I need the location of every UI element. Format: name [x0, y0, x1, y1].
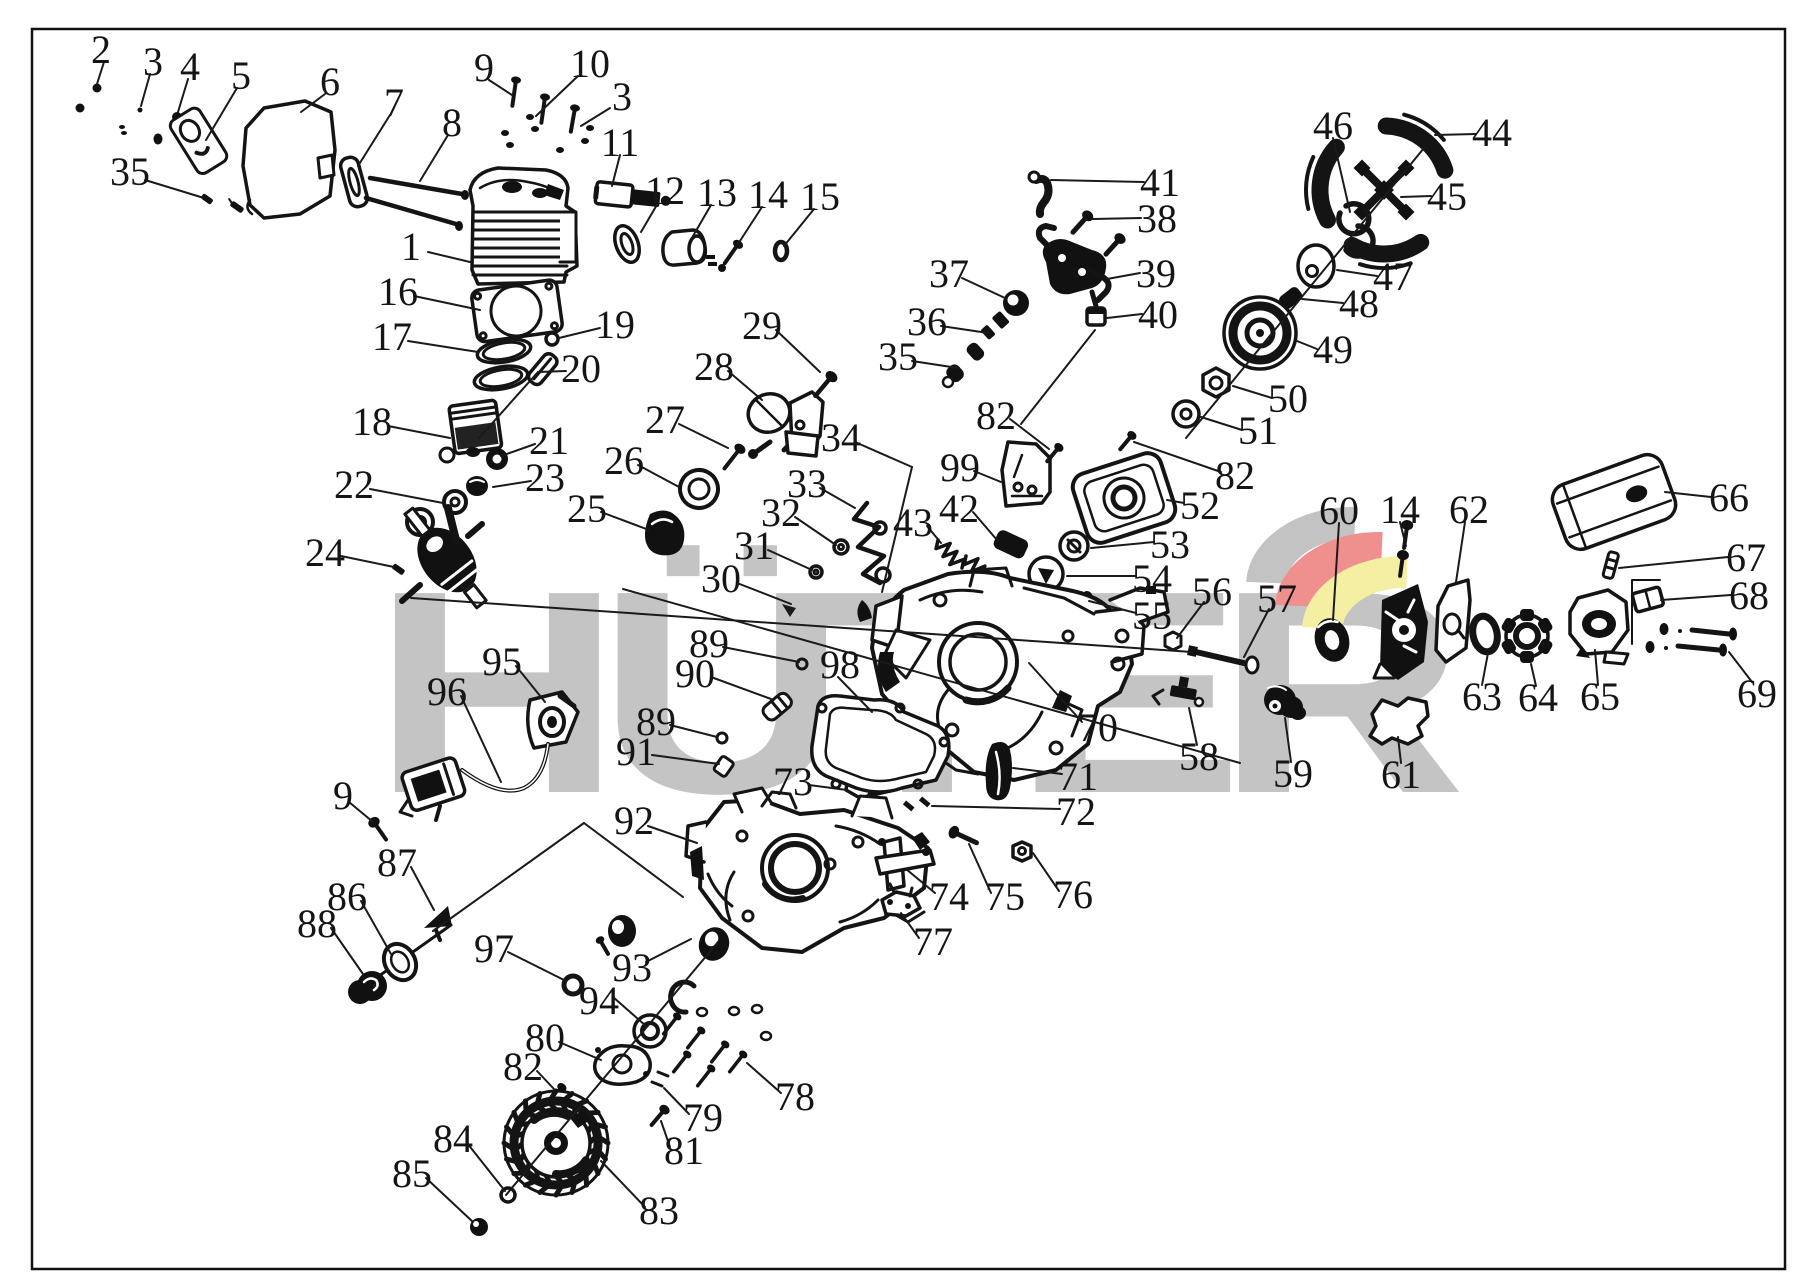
- svg-text:14: 14: [1380, 487, 1420, 532]
- svg-text:60: 60: [1319, 488, 1359, 533]
- svg-text:83: 83: [639, 1188, 679, 1233]
- svg-text:38: 38: [1137, 196, 1177, 241]
- svg-text:10: 10: [570, 41, 610, 86]
- svg-text:47: 47: [1373, 254, 1413, 299]
- svg-text:61: 61: [1381, 752, 1421, 797]
- svg-text:8: 8: [442, 100, 462, 145]
- svg-text:3: 3: [143, 39, 163, 84]
- svg-text:44: 44: [1472, 110, 1512, 155]
- svg-text:42: 42: [939, 486, 979, 531]
- svg-text:55: 55: [1132, 593, 1172, 638]
- svg-text:85: 85: [392, 1151, 432, 1196]
- svg-text:73: 73: [773, 759, 813, 804]
- svg-text:16: 16: [378, 269, 418, 314]
- svg-text:5: 5: [231, 53, 251, 98]
- svg-text:9: 9: [333, 773, 353, 818]
- svg-text:98: 98: [820, 642, 860, 687]
- svg-text:13: 13: [697, 170, 737, 215]
- svg-text:77: 77: [913, 919, 953, 964]
- svg-text:58: 58: [1179, 734, 1219, 779]
- svg-text:26: 26: [604, 438, 644, 483]
- svg-text:37: 37: [929, 251, 969, 296]
- svg-text:72: 72: [1056, 789, 1096, 834]
- svg-text:45: 45: [1427, 174, 1467, 219]
- svg-text:57: 57: [1257, 576, 1297, 621]
- svg-text:14: 14: [748, 172, 788, 217]
- svg-text:68: 68: [1729, 573, 1769, 618]
- svg-text:40: 40: [1138, 292, 1178, 337]
- svg-text:70: 70: [1078, 705, 1118, 750]
- svg-text:62: 62: [1449, 487, 1489, 532]
- svg-text:25: 25: [567, 486, 607, 531]
- svg-text:99: 99: [940, 445, 980, 490]
- svg-text:43: 43: [893, 500, 933, 545]
- svg-text:66: 66: [1709, 475, 1749, 520]
- svg-text:35: 35: [110, 149, 150, 194]
- svg-text:84: 84: [433, 1116, 473, 1161]
- svg-text:11: 11: [601, 120, 640, 165]
- svg-text:82: 82: [503, 1044, 543, 1089]
- svg-text:18: 18: [352, 399, 392, 444]
- svg-text:59: 59: [1273, 751, 1313, 796]
- svg-text:95: 95: [482, 639, 522, 684]
- svg-text:4: 4: [180, 44, 200, 89]
- svg-text:87: 87: [377, 840, 417, 885]
- svg-text:28: 28: [694, 344, 734, 389]
- svg-text:82: 82: [976, 393, 1016, 438]
- svg-text:56: 56: [1192, 569, 1232, 614]
- svg-text:35: 35: [878, 334, 918, 379]
- svg-text:34: 34: [821, 415, 861, 460]
- svg-text:23: 23: [525, 455, 565, 500]
- svg-text:20: 20: [561, 346, 601, 391]
- svg-text:39: 39: [1136, 251, 1176, 296]
- svg-text:1: 1: [401, 224, 421, 269]
- svg-text:15: 15: [800, 174, 840, 219]
- svg-text:64: 64: [1518, 675, 1558, 720]
- svg-text:17: 17: [372, 314, 412, 359]
- svg-text:75: 75: [985, 874, 1025, 919]
- svg-text:92: 92: [614, 798, 654, 843]
- svg-text:51: 51: [1238, 408, 1278, 453]
- svg-text:69: 69: [1737, 671, 1777, 716]
- svg-text:12: 12: [645, 168, 685, 213]
- svg-text:29: 29: [742, 303, 782, 348]
- svg-text:76: 76: [1053, 872, 1093, 917]
- svg-text:19: 19: [595, 302, 635, 347]
- svg-text:49: 49: [1313, 327, 1353, 372]
- svg-text:63: 63: [1462, 674, 1502, 719]
- svg-text:2: 2: [91, 27, 111, 72]
- svg-text:78: 78: [775, 1074, 815, 1119]
- svg-text:3: 3: [612, 74, 632, 119]
- svg-text:24: 24: [305, 530, 345, 575]
- svg-text:6: 6: [320, 59, 340, 104]
- svg-text:97: 97: [474, 926, 514, 971]
- svg-text:30: 30: [701, 556, 741, 601]
- svg-text:91: 91: [616, 729, 656, 774]
- svg-text:9: 9: [474, 45, 494, 90]
- svg-text:94: 94: [579, 978, 619, 1023]
- svg-text:82: 82: [1215, 453, 1255, 498]
- svg-text:74: 74: [929, 874, 969, 919]
- svg-text:7: 7: [384, 80, 404, 125]
- svg-text:96: 96: [427, 669, 467, 714]
- svg-text:46: 46: [1313, 103, 1353, 148]
- svg-text:88: 88: [297, 901, 337, 946]
- svg-text:65: 65: [1580, 674, 1620, 719]
- svg-text:48: 48: [1339, 281, 1379, 326]
- svg-text:90: 90: [675, 651, 715, 696]
- svg-text:22: 22: [334, 462, 374, 507]
- svg-text:81: 81: [664, 1128, 704, 1173]
- svg-text:27: 27: [645, 397, 685, 442]
